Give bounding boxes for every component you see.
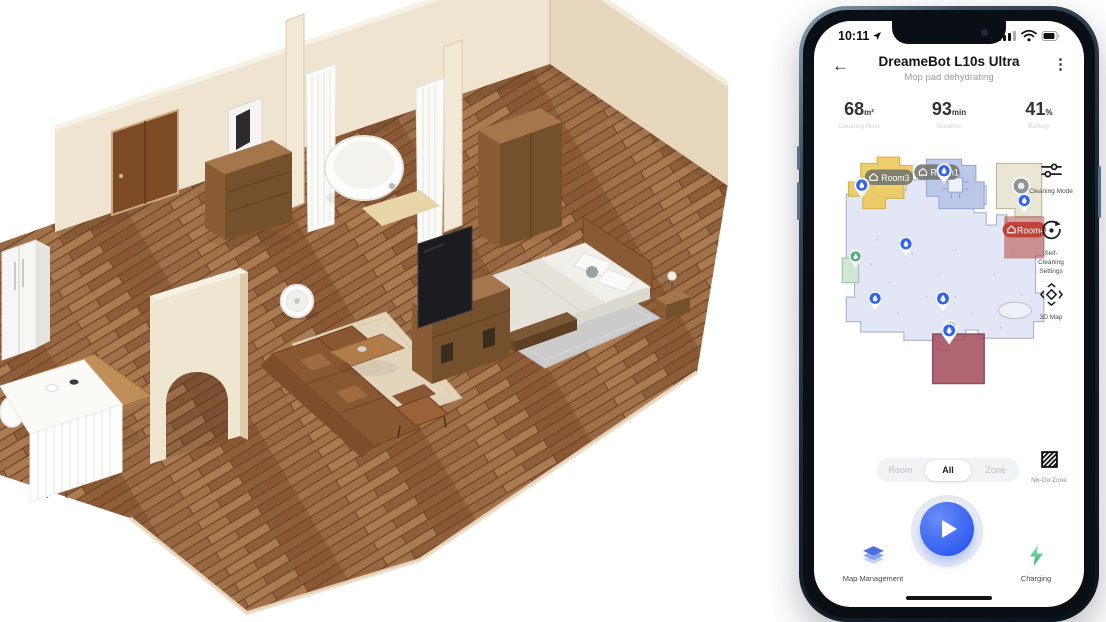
phone-bezel: 10:11 (803, 10, 1095, 618)
map-table-square (948, 178, 962, 192)
stat-battery: 41% Battery (994, 99, 1084, 130)
floor-plan-map[interactable]: Room3 Room1 Room4 (840, 151, 1046, 403)
tab-all[interactable]: All (925, 460, 972, 481)
3d-map-button[interactable]: 3D Map (1023, 283, 1079, 323)
clock: 10:11 (838, 29, 869, 43)
status-icons (998, 29, 1060, 43)
hatched-square-icon (1040, 450, 1059, 469)
play-button[interactable] (920, 502, 974, 556)
power-button (1098, 166, 1101, 218)
bolt-icon (1028, 545, 1045, 566)
battery-icon (1042, 32, 1059, 41)
move-3d-icon (1040, 283, 1063, 306)
no-go-zone-rect[interactable] (933, 334, 984, 383)
location-arrow-icon (872, 31, 882, 41)
tab-room[interactable]: Room (877, 460, 924, 481)
sliders-icon (1040, 161, 1063, 180)
stats-row: 68m² Cleaning Area 93min Runtime 41% Bat… (814, 99, 1084, 130)
arch-wall (150, 268, 248, 464)
layers-icon (861, 545, 886, 566)
tab-zone[interactable]: Zone (972, 460, 1019, 481)
home-indicator[interactable] (906, 596, 992, 601)
phone-mockup: 10:11 (799, 6, 1099, 622)
volume-up-button (797, 146, 800, 170)
stat-runtime: 93min Runtime (904, 99, 994, 130)
bathtub (325, 136, 403, 200)
camera-dot (981, 29, 988, 36)
wifi-icon (1022, 31, 1036, 42)
map-management-button[interactable]: Map Management (828, 545, 918, 583)
cleaning-mode-button[interactable]: Cleaning Mode (1023, 161, 1079, 197)
more-kebab-icon[interactable]: ⋮ (1053, 57, 1068, 72)
apartment-3d-render (0, 0, 806, 622)
notch (892, 21, 1006, 44)
volume-down-button (797, 182, 800, 220)
no-go-zone-button[interactable]: No-Go Zone (1022, 450, 1076, 484)
charging-button[interactable]: Charging (991, 545, 1081, 583)
tv (418, 226, 472, 328)
fridge (2, 240, 50, 360)
header: DreameBot L10s Ultra Mop pad dehydrating (854, 54, 1044, 83)
rotate-arrow-icon (1040, 219, 1063, 242)
wardrobe (472, 108, 568, 248)
back-button[interactable]: ← (832, 57, 849, 74)
room3-pill[interactable]: Room3 (865, 170, 913, 185)
self-cleaning-settings-button[interactable]: Self- Cleaning Settings (1023, 219, 1079, 276)
play-icon (942, 520, 957, 538)
app-screen: 10:11 (814, 21, 1084, 607)
stat-cleaning-area: 68m² Cleaning Area (814, 99, 904, 130)
svg-text:Room3: Room3 (881, 173, 909, 183)
device-title: DreameBot L10s Ultra (854, 54, 1044, 69)
map-mode-tabs: Room All Zone (877, 458, 1019, 482)
device-status: Mop pad dehydrating (854, 72, 1044, 83)
